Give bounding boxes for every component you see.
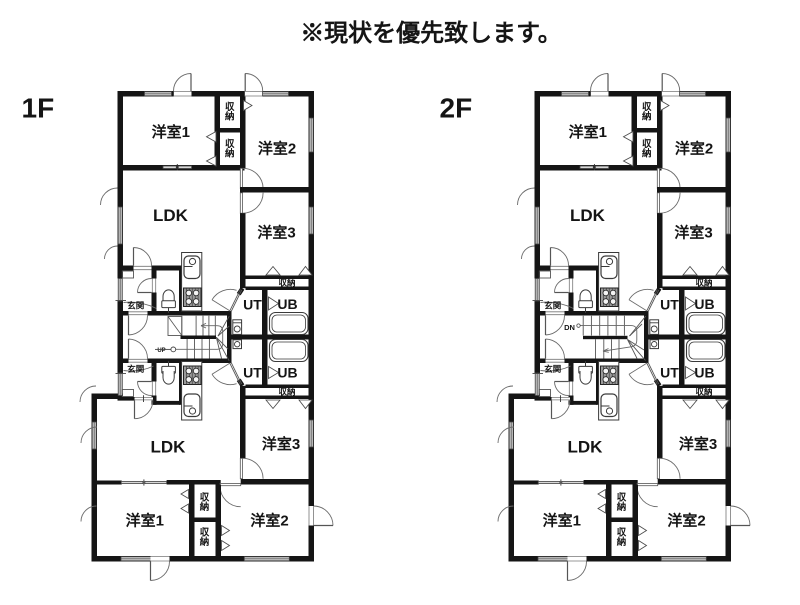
svg-text:DN: DN bbox=[564, 323, 575, 332]
svg-text:洋室2: 洋室2 bbox=[250, 512, 288, 530]
svg-text:洋室1: 洋室1 bbox=[543, 512, 581, 530]
svg-text:UB: UB bbox=[694, 296, 714, 312]
svg-text:収納: 収納 bbox=[642, 138, 652, 160]
svg-text:洋室3: 洋室3 bbox=[674, 223, 712, 241]
svg-text:収納: 収納 bbox=[278, 278, 295, 288]
svg-text:洋室1: 洋室1 bbox=[569, 123, 607, 141]
svg-text:洋室3: 洋室3 bbox=[679, 435, 717, 453]
svg-text:※現状を優先致します。: ※現状を優先致します。 bbox=[300, 19, 562, 47]
svg-text:玄関: 玄関 bbox=[127, 301, 144, 311]
svg-text:UT: UT bbox=[243, 365, 262, 381]
svg-text:洋室2: 洋室2 bbox=[675, 139, 713, 157]
svg-text:収納: 収納 bbox=[695, 386, 712, 396]
svg-text:LDK: LDK bbox=[153, 206, 189, 225]
svg-text:1F: 1F bbox=[22, 93, 55, 124]
svg-text:洋室1: 洋室1 bbox=[152, 123, 190, 141]
svg-text:収納: 収納 bbox=[695, 278, 712, 288]
svg-text:洋室1: 洋室1 bbox=[126, 512, 164, 530]
svg-text:玄関: 玄関 bbox=[544, 364, 561, 374]
svg-text:UB: UB bbox=[277, 365, 297, 381]
svg-text:洋室2: 洋室2 bbox=[258, 139, 296, 157]
svg-text:UT: UT bbox=[243, 297, 262, 313]
svg-text:収納: 収納 bbox=[642, 101, 652, 123]
svg-text:収納: 収納 bbox=[617, 527, 627, 549]
svg-text:収納: 収納 bbox=[200, 527, 210, 549]
svg-text:2F: 2F bbox=[440, 93, 473, 124]
svg-text:UT: UT bbox=[660, 365, 679, 381]
svg-text:玄関: 玄関 bbox=[127, 364, 144, 374]
svg-text:玄関: 玄関 bbox=[544, 301, 561, 311]
svg-text:収納: 収納 bbox=[278, 386, 295, 396]
svg-text:収納: 収納 bbox=[200, 492, 210, 514]
svg-text:UT: UT bbox=[660, 297, 679, 313]
svg-text:LDK: LDK bbox=[151, 438, 187, 457]
svg-text:洋室3: 洋室3 bbox=[257, 223, 295, 241]
svg-text:収納: 収納 bbox=[225, 138, 235, 160]
svg-text:LDK: LDK bbox=[570, 206, 606, 225]
svg-text:UP: UP bbox=[157, 348, 165, 354]
svg-text:UB: UB bbox=[694, 365, 714, 381]
svg-text:UB: UB bbox=[277, 296, 297, 312]
svg-text:洋室2: 洋室2 bbox=[667, 512, 705, 530]
svg-text:収納: 収納 bbox=[225, 101, 235, 123]
svg-text:洋室3: 洋室3 bbox=[262, 435, 300, 453]
svg-text:収納: 収納 bbox=[617, 492, 627, 514]
svg-text:LDK: LDK bbox=[568, 438, 604, 457]
